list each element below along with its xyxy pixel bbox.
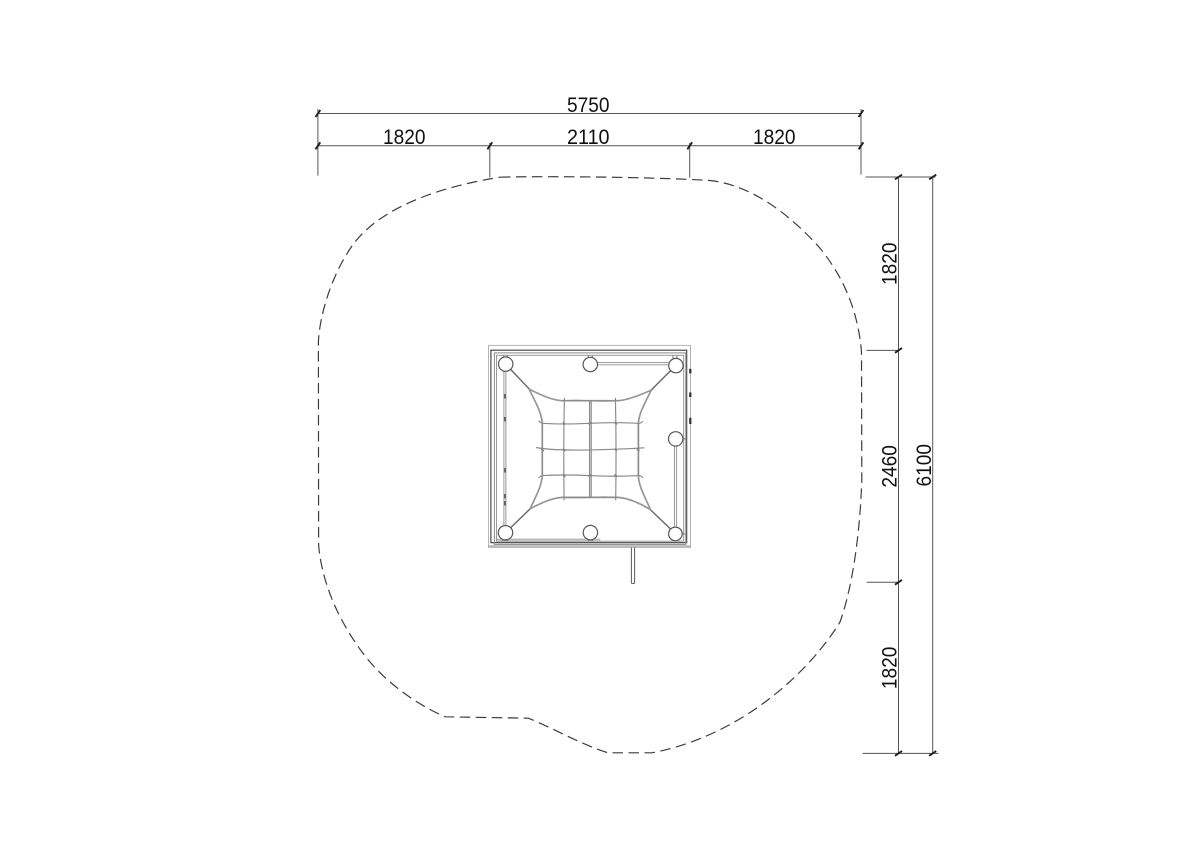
svg-text:1820: 1820: [383, 125, 426, 149]
svg-text:2110: 2110: [567, 125, 610, 149]
svg-text:1820: 1820: [878, 242, 902, 285]
svg-text:1820: 1820: [878, 647, 902, 690]
svg-text:1820: 1820: [753, 125, 796, 149]
svg-text:5750: 5750: [567, 93, 610, 117]
svg-text:6100: 6100: [912, 444, 936, 487]
svg-text:2460: 2460: [878, 445, 902, 488]
